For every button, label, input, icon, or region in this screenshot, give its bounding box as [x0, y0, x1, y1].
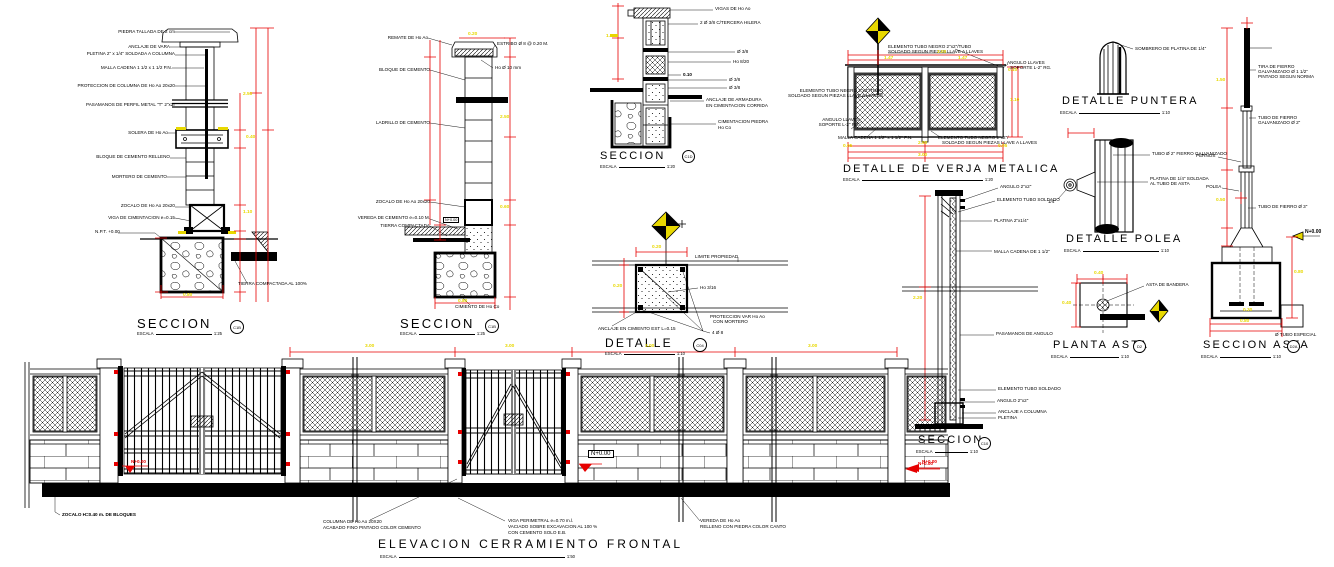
- dimension-text: 2.50: [243, 92, 252, 97]
- detail-bubble: C04: [693, 338, 707, 352]
- scale-value: 1:20: [985, 177, 993, 182]
- annotation-label: POLEA: [1206, 184, 1221, 190]
- level-marker: N+0.00: [588, 450, 614, 458]
- scale-value: 1:20: [667, 164, 675, 169]
- dimension-text: 1.47: [958, 56, 967, 61]
- annotation-label: PERNOS: [1196, 153, 1215, 159]
- scale-value: 1:10: [1162, 110, 1170, 115]
- annotation-label: SOLDADO SEGUN PIEZAS LLAVE A LLAVES: [778, 93, 883, 99]
- detail-bubble: C1B: [230, 320, 244, 334]
- annotation-label: SOLDADO SEGUN PIEZAS LLAVE A LLAVES: [888, 49, 983, 55]
- annotation-label: PLATINA 2"x1/4": [994, 218, 1028, 224]
- annotation-label: GALVANIZADO Ø 2": [1258, 120, 1300, 126]
- annotation-label: AL TUBO DE ASTA: [1150, 181, 1190, 187]
- annotation-label: Ø 3/8: [729, 77, 740, 83]
- panel-title: SECCION: [400, 316, 475, 331]
- scale-value: 1:10: [1121, 354, 1129, 359]
- annotation-label: TUBO Ø 2" FIERRO GALVANIZADO: [1152, 151, 1227, 157]
- dimension-text: 3.00: [918, 153, 927, 158]
- dimension-text: 0.05: [998, 144, 1007, 149]
- scale-bar: ESCALA1:25: [400, 331, 485, 336]
- dimension-text: 2.90: [918, 141, 927, 146]
- scale-bar: ESCALA1:50: [380, 554, 575, 559]
- detail-bubble: D2A: [1287, 340, 1300, 353]
- annotation-label: ANGULO 2"x2": [1000, 184, 1031, 190]
- scale-label: ESCALA: [605, 351, 622, 356]
- annotation-label: VIGA PERIMETRAL e=0.70 m.l.: [508, 518, 573, 524]
- annotation-label: VIGA DE CIMENTACION e=0.15: [80, 215, 175, 221]
- annotation-label: 4 Ø 8: [712, 330, 723, 336]
- scale-bar: ESCALA1:20: [843, 177, 993, 182]
- annotation-label: LIMITE PROPIEDAD: [695, 254, 738, 260]
- dimension-text: 3.00: [365, 344, 374, 349]
- dimension-text: 0.80: [183, 293, 192, 298]
- annotation-label: CIMENTACION PIEDRA: [718, 119, 768, 125]
- dimension-text: 3.00: [645, 344, 654, 349]
- annotation-label: SOMBRERO DE PLATINA DE 1/4": [1135, 46, 1206, 52]
- scale-label: ESCALA: [1201, 354, 1218, 359]
- annotation-label: SOPORTE L-2" RG.: [785, 122, 860, 128]
- annotation-label: SOLDADO SEGUN PIEZAS LLAVE A LLAVES: [942, 140, 1037, 146]
- scale-label: ESCALA: [916, 449, 933, 454]
- dimension-text: 2.50: [500, 115, 509, 120]
- scale-value: 1:10: [1273, 354, 1281, 359]
- scale-bar: ESCALA1:20: [600, 164, 675, 169]
- dimension-text: 0.60: [500, 205, 509, 210]
- polea-geometry: [1058, 128, 1150, 234]
- annotation-label: ELEMENTO TUBO SOLDADO: [997, 197, 1060, 203]
- elevacion-geometry: [25, 347, 950, 522]
- dimension-text: 0.10: [1008, 68, 1017, 73]
- annotation-label: Ø 3/8: [737, 49, 748, 55]
- dimension-text: 0.40: [246, 135, 255, 140]
- dimension-text: 1.50: [1216, 78, 1225, 83]
- annotation-label: ANCLAJE A COLUMNA: [998, 409, 1047, 415]
- annotation-label: ZOCALO DE Ho Ao 20x20: [80, 203, 175, 209]
- scale-label: ESCALA: [400, 331, 417, 336]
- section-b-geometry: [405, 38, 516, 310]
- annotation-label: 2 Ø 3/8 C/TERCERA HILERA: [700, 20, 761, 26]
- annotation-label: ANGULO 2"x2": [997, 398, 1028, 404]
- annotation-label: ANCLAJE DE ARMADURA: [706, 97, 762, 103]
- annotation-label: Ho 3/16: [700, 285, 716, 291]
- annotation-label: ACABADO FINO PINTADO COLOR CEMENTO: [323, 525, 421, 531]
- dimension-text: 0.80: [458, 299, 467, 304]
- detail-bubble: C10: [978, 437, 991, 450]
- annotation-label: CON CEMENTO SOLO E.B.: [508, 530, 566, 536]
- dimension-text: 3.00: [808, 344, 817, 349]
- annotation-label: ESTRIBO Ø 8 @ 0.20 M.: [497, 41, 548, 47]
- annotation-label: Ø 3/8: [729, 85, 740, 91]
- dimension-text: 1.47: [884, 56, 893, 61]
- dimension-text: 0.80: [1240, 319, 1249, 324]
- level-marker: N+0.00: [1305, 229, 1321, 235]
- annotation-label: MALLA CADENA 1 1/2" x 1 1/2" P.N.: [838, 135, 912, 141]
- annotation-label: ZOCALO DE Ho Ao 20x20: [345, 199, 430, 205]
- puntera-geometry: [1097, 42, 1133, 94]
- scale-label: ESCALA: [1064, 248, 1081, 253]
- scale-label: ESCALA: [380, 554, 397, 559]
- scale-bar: ESCALA1:10: [1201, 354, 1281, 359]
- scale-label: ESCALA: [1051, 354, 1068, 359]
- scale-bar: ESCALA1:10: [1064, 248, 1169, 253]
- annotation-label: TIERRA COMPACTADA: [340, 223, 430, 229]
- dimension-text: 2.20: [913, 296, 922, 301]
- annotation-label: TIERRA COMPACTADA AL 100%: [238, 281, 307, 287]
- annotation-label: SOLERA DE Ho Ao: [68, 130, 168, 136]
- annotation-label: Ho Ø 10 mm: [495, 65, 521, 71]
- scale-bar: ESCALA1:10: [1060, 110, 1170, 115]
- annotation-label: Ho Co: [718, 125, 731, 131]
- annotation-label: ZOCALO H=0.40 m. DE BLOQUES: [62, 512, 136, 518]
- scale-value: 1:10: [1161, 248, 1169, 253]
- panel-title: DETALLE: [605, 336, 673, 350]
- scale-bar: ESCALA1:10: [1051, 354, 1129, 359]
- scale-value: 1:10: [677, 351, 685, 356]
- dimension-text: 1.10: [606, 34, 615, 39]
- annotation-label: EN CIMENTACION CORRIDA: [706, 103, 768, 109]
- annotation-label: CON MORTERO: [713, 319, 748, 325]
- dimension-text: 0.05: [843, 144, 852, 149]
- panel-title: DETALLE POLEA: [1066, 233, 1182, 245]
- annotation-label: VEREDA DE Ho Ao: [700, 518, 740, 524]
- annotation-label: CIMIENTO DE Ho Co: [455, 304, 499, 310]
- dimension-text: 3.00: [937, 50, 946, 55]
- dimension-text: 0.50: [1216, 198, 1225, 203]
- annotation-label: MORTERO DE CEMENTO: [62, 174, 167, 180]
- dimension-text: 1.10: [243, 210, 252, 215]
- scale-value: 1:10: [970, 449, 978, 454]
- dimension-text: 0.20: [613, 284, 622, 289]
- annotation-label: BLOQUE DE CEMENTO: [345, 67, 430, 73]
- panel-title: DETALLE DE VERJA METALICA: [843, 163, 1060, 175]
- panel-title: SECCION: [918, 434, 984, 446]
- annotation-label: COLUMNA DE Ho Ao 20X20: [323, 519, 382, 525]
- annotation-label: RELLENO CON PIEDRA COLOR CANTO: [700, 524, 786, 530]
- annotation-label: BLOQUE DE CEMENTO RELLENO: [60, 154, 170, 160]
- dimension-text: 0.80: [1294, 270, 1303, 275]
- annotation-label: TUBO DE FIERRO Ø 3": [1258, 204, 1307, 210]
- annotation-label: VEREDA DE CEMENTO e=0.10 M.: [340, 215, 430, 221]
- scale-value: 1:25: [477, 331, 485, 336]
- dimension-text: 0.20: [652, 245, 661, 250]
- cad-sheet: PIEDRA TALLADA DE 2 cm ANCLAJE DE VARA P…: [0, 0, 1334, 567]
- panel-title: DETALLE PUNTERA: [1062, 95, 1199, 107]
- scale-bar: ESCALA1:25: [137, 331, 222, 336]
- annotation-label: ASTA DE BANDERA: [1146, 282, 1189, 288]
- level-marker: N+0.00: [922, 459, 937, 464]
- scale-label: ESCALA: [1060, 110, 1077, 115]
- annotation-label: LADRILLO DE CEMENTO: [345, 120, 430, 126]
- annotation-label: PASAMANOS DE ANGULO: [996, 331, 1053, 337]
- scale-value: 1:50: [567, 554, 575, 559]
- scale-label: ESCALA: [843, 177, 860, 182]
- annotation-label: N.P.T. +0.00: [95, 229, 120, 235]
- detail-bubble: C1B: [485, 319, 499, 333]
- scale-label: ESCALA: [137, 331, 154, 336]
- annotation-label: VACIADO SOBRE EXCAVACION AL 100 %: [508, 524, 597, 530]
- annotation-label: ANCLAJE EN CIMIENTO EST L=0.15: [598, 326, 676, 332]
- annotation-label: PASAMANOS DE PERFIL METAL "T" 2"x2": [58, 102, 175, 108]
- annotation-label: REMATE DE Ho Ao: [348, 35, 428, 41]
- detail-bubble: D2: [1133, 340, 1146, 353]
- panel-title: SECCION: [600, 150, 666, 162]
- annotation-label: Ø TUBO ESPECIAL: [1275, 332, 1316, 338]
- annotation-label: Ho 8/20: [733, 59, 749, 65]
- annotation-label: ANCLAJE DE VARA: [70, 44, 170, 50]
- annotation-label: PLETINA: [998, 415, 1017, 421]
- panel-title: ELEVACION CERRAMIENTO FRONTAL: [378, 537, 683, 551]
- annotation-label: PLETINA 2" x 1/4" SOLDADA A COLUMNA: [60, 51, 175, 57]
- annotation-label: MALLA CADENA DE 1 1/2": [994, 249, 1050, 255]
- dimension-text: 3.00: [505, 344, 514, 349]
- scale-bar: ESCALA1:10: [605, 351, 685, 356]
- annotation-label: PIEDRA TALLADA DE 2 cm: [75, 29, 175, 35]
- annotation-label: MALLA CADENA 1 1/2 x 1 1/2 P.N.: [62, 65, 172, 71]
- dimension-text: 0.40: [1094, 271, 1103, 276]
- dimension-text: 0.30: [1243, 308, 1252, 313]
- level-marker: N+0.00: [131, 459, 146, 464]
- annotation-label: 0.10: [683, 72, 692, 78]
- annotation-label: VIGAS DE Ho Ao: [715, 6, 751, 12]
- scale-label: ESCALA: [600, 164, 617, 169]
- annotation-label: PROTECCION DE COLUMNA DE Ho Ao 20x20: [55, 83, 175, 89]
- panel-title: SECCION: [137, 316, 212, 331]
- dimension-text: 1.10: [1010, 98, 1019, 103]
- level-marker: N+0.00: [443, 217, 459, 223]
- annotation-label: ELEMENTO TUBO SOLDADO: [998, 386, 1061, 392]
- dimension-text: 0.40: [1062, 301, 1071, 306]
- annotation-label: PINTADO SEGUN NORMA: [1258, 74, 1314, 80]
- dimension-text: 0.20: [468, 32, 477, 37]
- scale-value: 1:25: [214, 331, 222, 336]
- scale-bar: ESCALA1:10: [916, 449, 978, 454]
- drawing-linework: [0, 0, 1334, 567]
- detail-bubble: C1D: [682, 150, 695, 163]
